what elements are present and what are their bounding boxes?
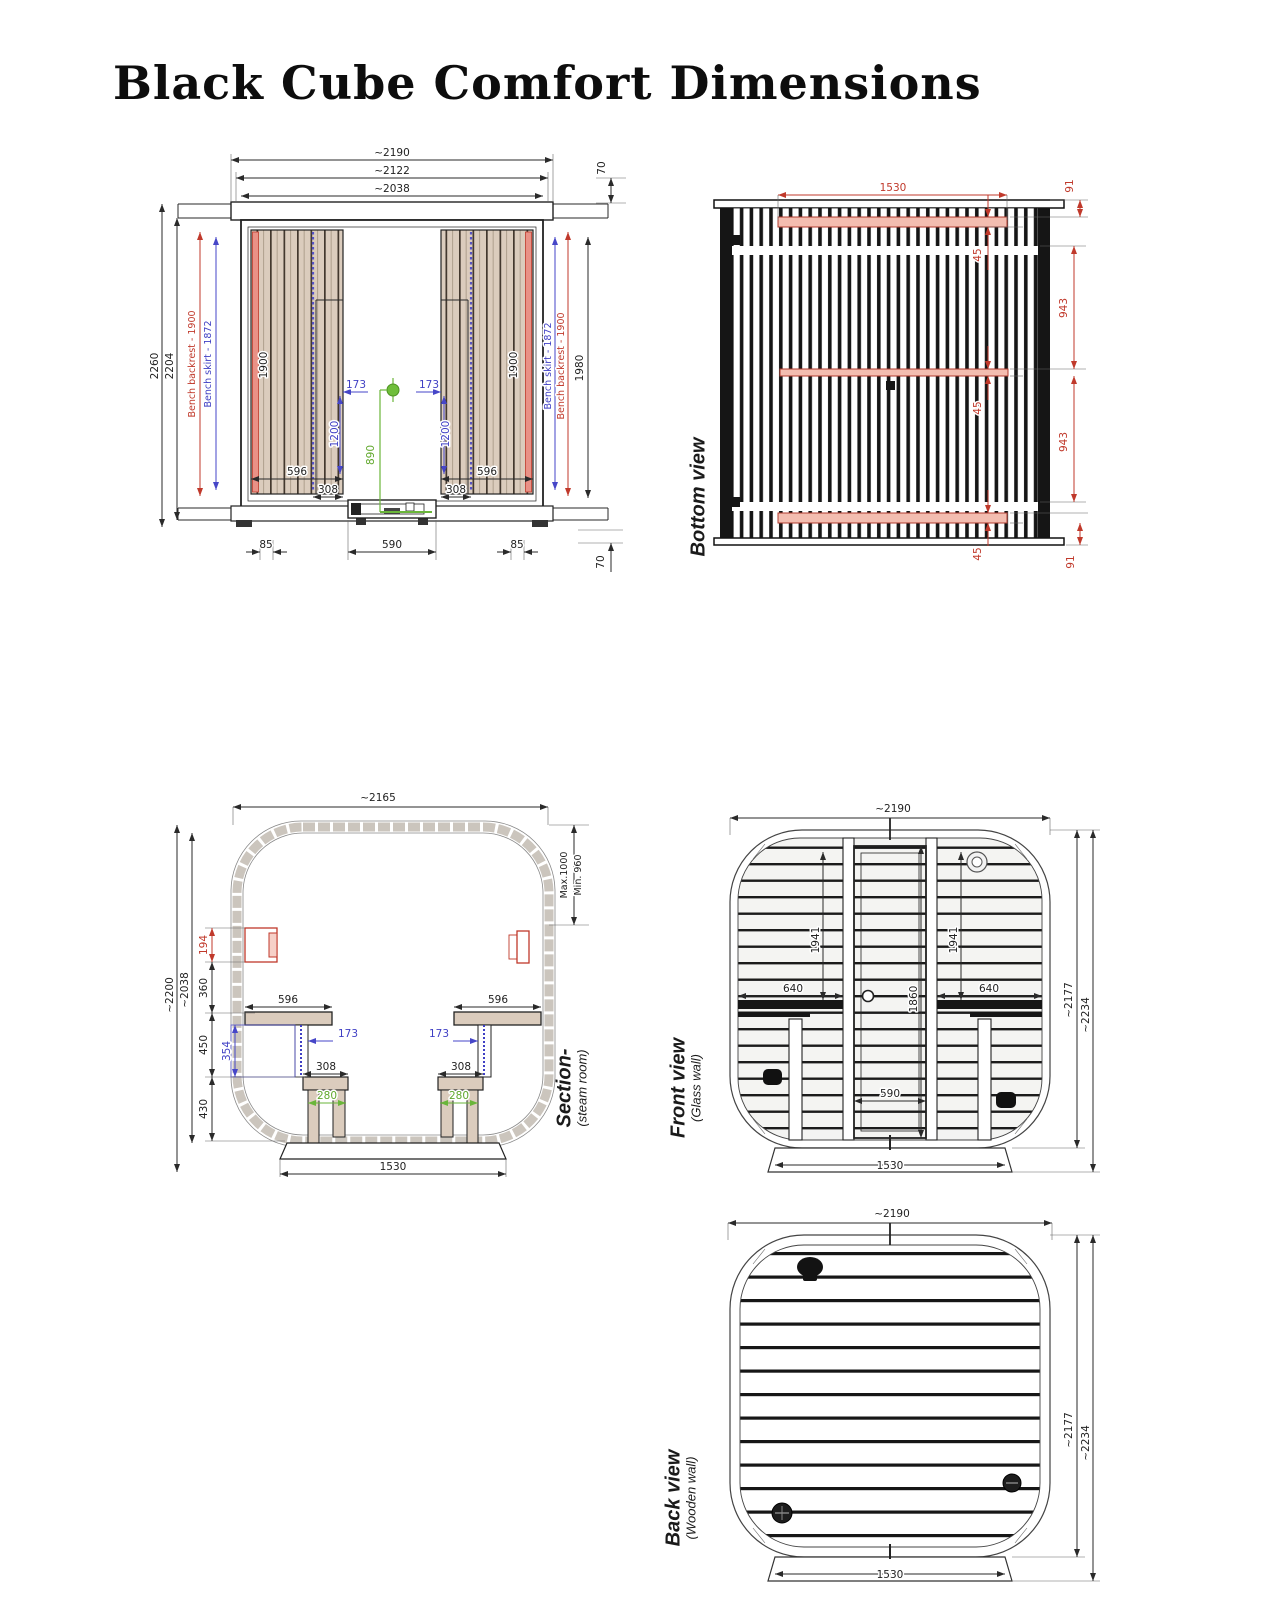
dim-1980: 1980 (574, 355, 586, 382)
dim-max1000: Max.1000 (559, 852, 570, 899)
dim-45-mid: 45 (972, 401, 984, 414)
dim-943-bottom: 943 (1058, 432, 1070, 452)
dim-590: 590 (382, 539, 402, 551)
dim-45-top: 45 (972, 248, 984, 261)
dim-2260: 2260 (149, 353, 161, 380)
dim-2165: ~2165 (360, 792, 396, 804)
dim-70-top: 70 (596, 161, 608, 174)
dim-91-top: 91 (1064, 179, 1076, 192)
dim-1530-f: 1530 (877, 1160, 904, 1172)
dim-2038: ~2038 (179, 972, 191, 1008)
dim-2177-f: ~2177 (1063, 982, 1075, 1018)
dim-596-right: 596 (477, 466, 497, 478)
dim-2234-f: ~2234 (1080, 997, 1092, 1033)
dim-1900-left: 1900 (258, 352, 270, 379)
dim-173-left-s: 173 (338, 1028, 358, 1040)
label-backrest-right: Bench backrest - 1900 (556, 312, 567, 419)
dim-2200: ~2200 (165, 977, 176, 1013)
dim-450: 450 (198, 1035, 210, 1055)
section-drawing: ~2165 Max.1000 Min. 960 ~2200 ~2038 194 … (165, 785, 615, 1180)
dim-2234-b: ~2234 (1080, 1425, 1092, 1461)
dim-2204: 2204 (164, 352, 176, 379)
dim-308-right-s: 308 (451, 1061, 471, 1073)
dim-85-left: 85 (259, 539, 272, 551)
dim-308-right: 308 (446, 484, 466, 496)
dim-590-f: 590 (880, 1088, 900, 1100)
top-view-drawing: 890 ~2190 ~2122 ~2038 70 2260 2204 Bench… (148, 140, 648, 585)
dim-2190-b: ~2190 (874, 1208, 910, 1220)
dim-2177-b: ~2177 (1063, 1412, 1075, 1448)
dim-2038: ~2038 (374, 183, 410, 195)
dim-1530: 1530 (880, 182, 907, 194)
dim-354: 354 (221, 1041, 233, 1061)
dim-1941-right: 1941 (948, 927, 960, 954)
base-section (280, 1143, 506, 1159)
dim-min960: Min. 960 (573, 854, 584, 895)
back-view-label: Back view (Wooden wall) (663, 1450, 698, 1547)
dim-194: 194 (198, 935, 210, 955)
dim-430: 430 (198, 1099, 210, 1119)
bottom-view-drawing: 1530 91 45 943 45 943 45 (678, 150, 1098, 580)
dim-308-left-s: 308 (316, 1061, 336, 1073)
dim-2190-f: ~2190 (875, 803, 911, 815)
dim-173-left: 173 (346, 379, 366, 391)
page: Black Cube Comfort Dimensions (0, 0, 1280, 1600)
shell (231, 821, 555, 1147)
dim-360: 360 (198, 978, 210, 998)
bottom-view-label: Bottom view (689, 438, 710, 557)
floor-structure (714, 200, 1064, 545)
dim-1530-s: 1530 (380, 1161, 407, 1173)
section-label: Section- (steam room) (554, 1049, 589, 1128)
page-title: Black Cube Comfort Dimensions (113, 56, 982, 110)
dim-70-bottom: 70 (595, 555, 607, 568)
dim-2190: ~2190 (374, 147, 410, 159)
door-plan (348, 500, 436, 518)
dim-640-left: 640 (783, 983, 803, 995)
label-skirt-right: Bench skirt - 1872 (543, 322, 554, 409)
dim-596-left: 596 (287, 466, 307, 478)
dim-1941-left: 1941 (810, 927, 822, 954)
label-backrest-left: Bench backrest - 1900 (187, 310, 198, 417)
dim-173-right-s: 173 (429, 1028, 449, 1040)
front-view-label: Front view (Glass wall) (668, 1038, 703, 1138)
dim-1200-left: 1200 (329, 421, 341, 448)
dim-596-left-s: 596 (278, 994, 298, 1006)
top-dimensions: ~2190 ~2122 ~2038 70 (231, 147, 626, 203)
bottom-dimensions: 85 590 85 70 (246, 520, 623, 572)
valve-right (1003, 1474, 1021, 1492)
dim-45-bottom: 45 (972, 547, 984, 560)
dim-943-top: 943 (1058, 298, 1070, 318)
dim-85-right: 85 (510, 539, 523, 551)
door-knob (863, 991, 874, 1002)
dim-1200-right: 1200 (440, 421, 452, 448)
dim-1900-right: 1900 (508, 352, 520, 379)
dim-2122: ~2122 (374, 165, 410, 177)
dim-308-left: 308 (318, 484, 338, 496)
dim-91-bottom: 91 (1065, 555, 1077, 568)
dim-173-right: 173 (419, 379, 439, 391)
front-view-drawing: ~2190 1941 1941 640 640 1860 590 1530 ~2… (705, 790, 1105, 1185)
dim-596-right-s: 596 (488, 994, 508, 1006)
fan-vent (967, 852, 987, 872)
dim-890: 890 (365, 445, 377, 465)
dim-640-right: 640 (979, 983, 999, 995)
dim-1860: 1860 (908, 986, 920, 1013)
dim-280-right: 280 (449, 1090, 469, 1102)
valve-left (772, 1503, 792, 1523)
back-view-drawing: ~2190 1530 ~2177 ~2234 (705, 1195, 1105, 1600)
dim-280-left: 280 (317, 1090, 337, 1102)
label-skirt-left: Bench skirt - 1872 (203, 320, 214, 407)
dim-1530-b: 1530 (877, 1569, 904, 1581)
